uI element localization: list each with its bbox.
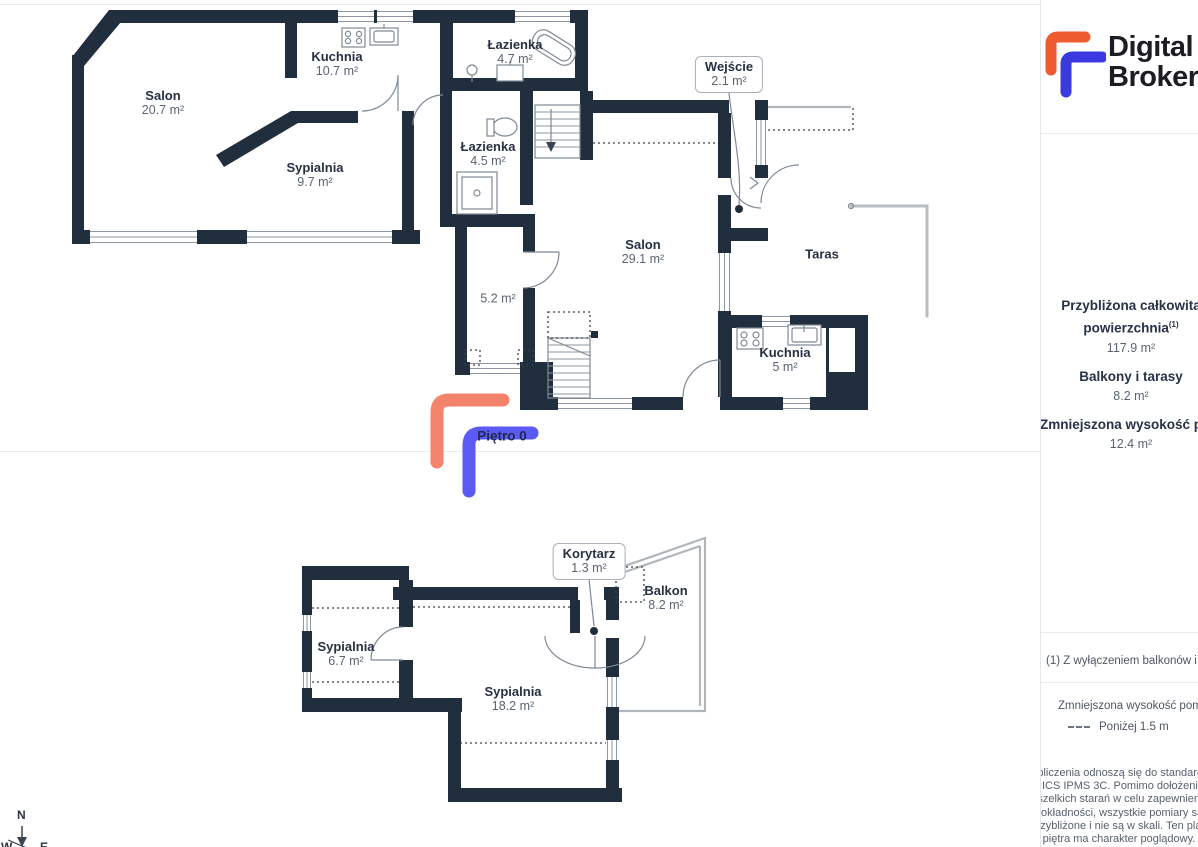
compass-north-label: N: [17, 808, 26, 822]
balcony-outline: [619, 538, 705, 711]
legend-item-label: Poniżej 1.5 m: [1099, 721, 1169, 733]
room-label-salon-duzy: Salon 29.1 m²: [622, 237, 664, 267]
digital-broker-logo-text: Digital Broker: [1108, 32, 1198, 92]
stove-icon: [342, 28, 365, 47]
room-label-sypialnia-duza: Sypialnia 18.2 m²: [484, 684, 541, 714]
kitchen-sink-icon-2: [788, 325, 821, 345]
summary-balconies-value: 8.2 m²: [1040, 389, 1198, 403]
floor-marker-brackets: [437, 400, 532, 491]
floorplan-viewer-page: Salon 20.7 m² Kuchnia 10.7 m² Sypialnia …: [0, 0, 1198, 847]
compass-west-label: W: [1, 840, 12, 847]
summary-reduced-height: Zmniejszona wysokość pomieszczeń 12.4 m²: [1040, 415, 1198, 451]
wejscie-callout: Wejście 2.1 m²: [695, 56, 763, 93]
legend-row: Poniżej 1.5 m: [1068, 721, 1169, 733]
stairs-up: [548, 331, 598, 398]
sidebar-divider: [1041, 632, 1198, 633]
korytarz-marker-dot: [590, 627, 598, 635]
room-label-balkon: Balkon 8.2 m²: [644, 583, 687, 613]
toilet-icon: [487, 118, 517, 136]
digital-broker-logo-icon: [1042, 28, 1106, 108]
terrace-railing: [849, 204, 928, 317]
sidebar-divider: [1041, 133, 1198, 134]
sidebar-divider: [1041, 682, 1198, 683]
floorplan-drawing: [0, 0, 1040, 847]
floor-label: Piętro 0: [477, 429, 527, 444]
room-label-lazienka-dolna: Łazienka 4.5 m²: [461, 139, 516, 169]
room-label-sypialnia-mala: Sypialnia 6.7 m²: [317, 639, 374, 669]
summary-balconies: Balkony i tarasy 8.2 m²: [1040, 367, 1198, 403]
stairs-down: [535, 105, 580, 158]
room-label-taras: Taras: [805, 247, 839, 262]
bottom-plan-walls: [302, 566, 622, 802]
dashed-line-icon: [1068, 726, 1090, 728]
summary-total-area: Przybliżona całkowita powierzchnia(1) 11…: [1040, 296, 1198, 355]
korytarz-callout: Korytarz 1.3 m²: [553, 543, 626, 580]
sidebar-left-border: [1040, 0, 1041, 847]
compass-east-label: E: [40, 840, 48, 847]
entrance-marker-dot: [735, 205, 743, 213]
summary-reduced-height-value: 12.4 m²: [1040, 437, 1198, 451]
korytarz-leader-line: [589, 579, 594, 626]
summary-total-area-value: 117.9 m²: [1040, 341, 1198, 355]
room-label-korytarz-parter: 5.2 m²: [480, 292, 515, 307]
room-label-sypialnia: Sypialnia 9.7 m²: [286, 160, 343, 190]
footnote-marker: (1): [1169, 320, 1179, 329]
shower-icon: [457, 172, 497, 214]
room-label-salon: Salon 20.7 m²: [142, 88, 184, 118]
disclaimer-text: Obliczenia odnoszą się do standardu RICS…: [1040, 767, 1198, 846]
summary-total-area-label: powierzchnia: [1083, 321, 1169, 336]
kitchen-sink-icon: [370, 24, 398, 45]
room-label-kuchnia-mala: Kuchnia 5 m²: [759, 345, 810, 375]
info-sidebar: Digital Broker Przybliżona całkowita pow…: [1040, 0, 1198, 847]
legend-title: Zmniejszona wysokość pomieszczeń: [1058, 700, 1198, 712]
room-label-lazienka-gorna: Łazienka 4.7 m²: [488, 37, 543, 67]
sidebar-footnote: (1) Z wyłączeniem balkonów i tarasów: [1046, 655, 1198, 667]
room-label-kuchnia: Kuchnia 10.7 m²: [311, 49, 362, 79]
